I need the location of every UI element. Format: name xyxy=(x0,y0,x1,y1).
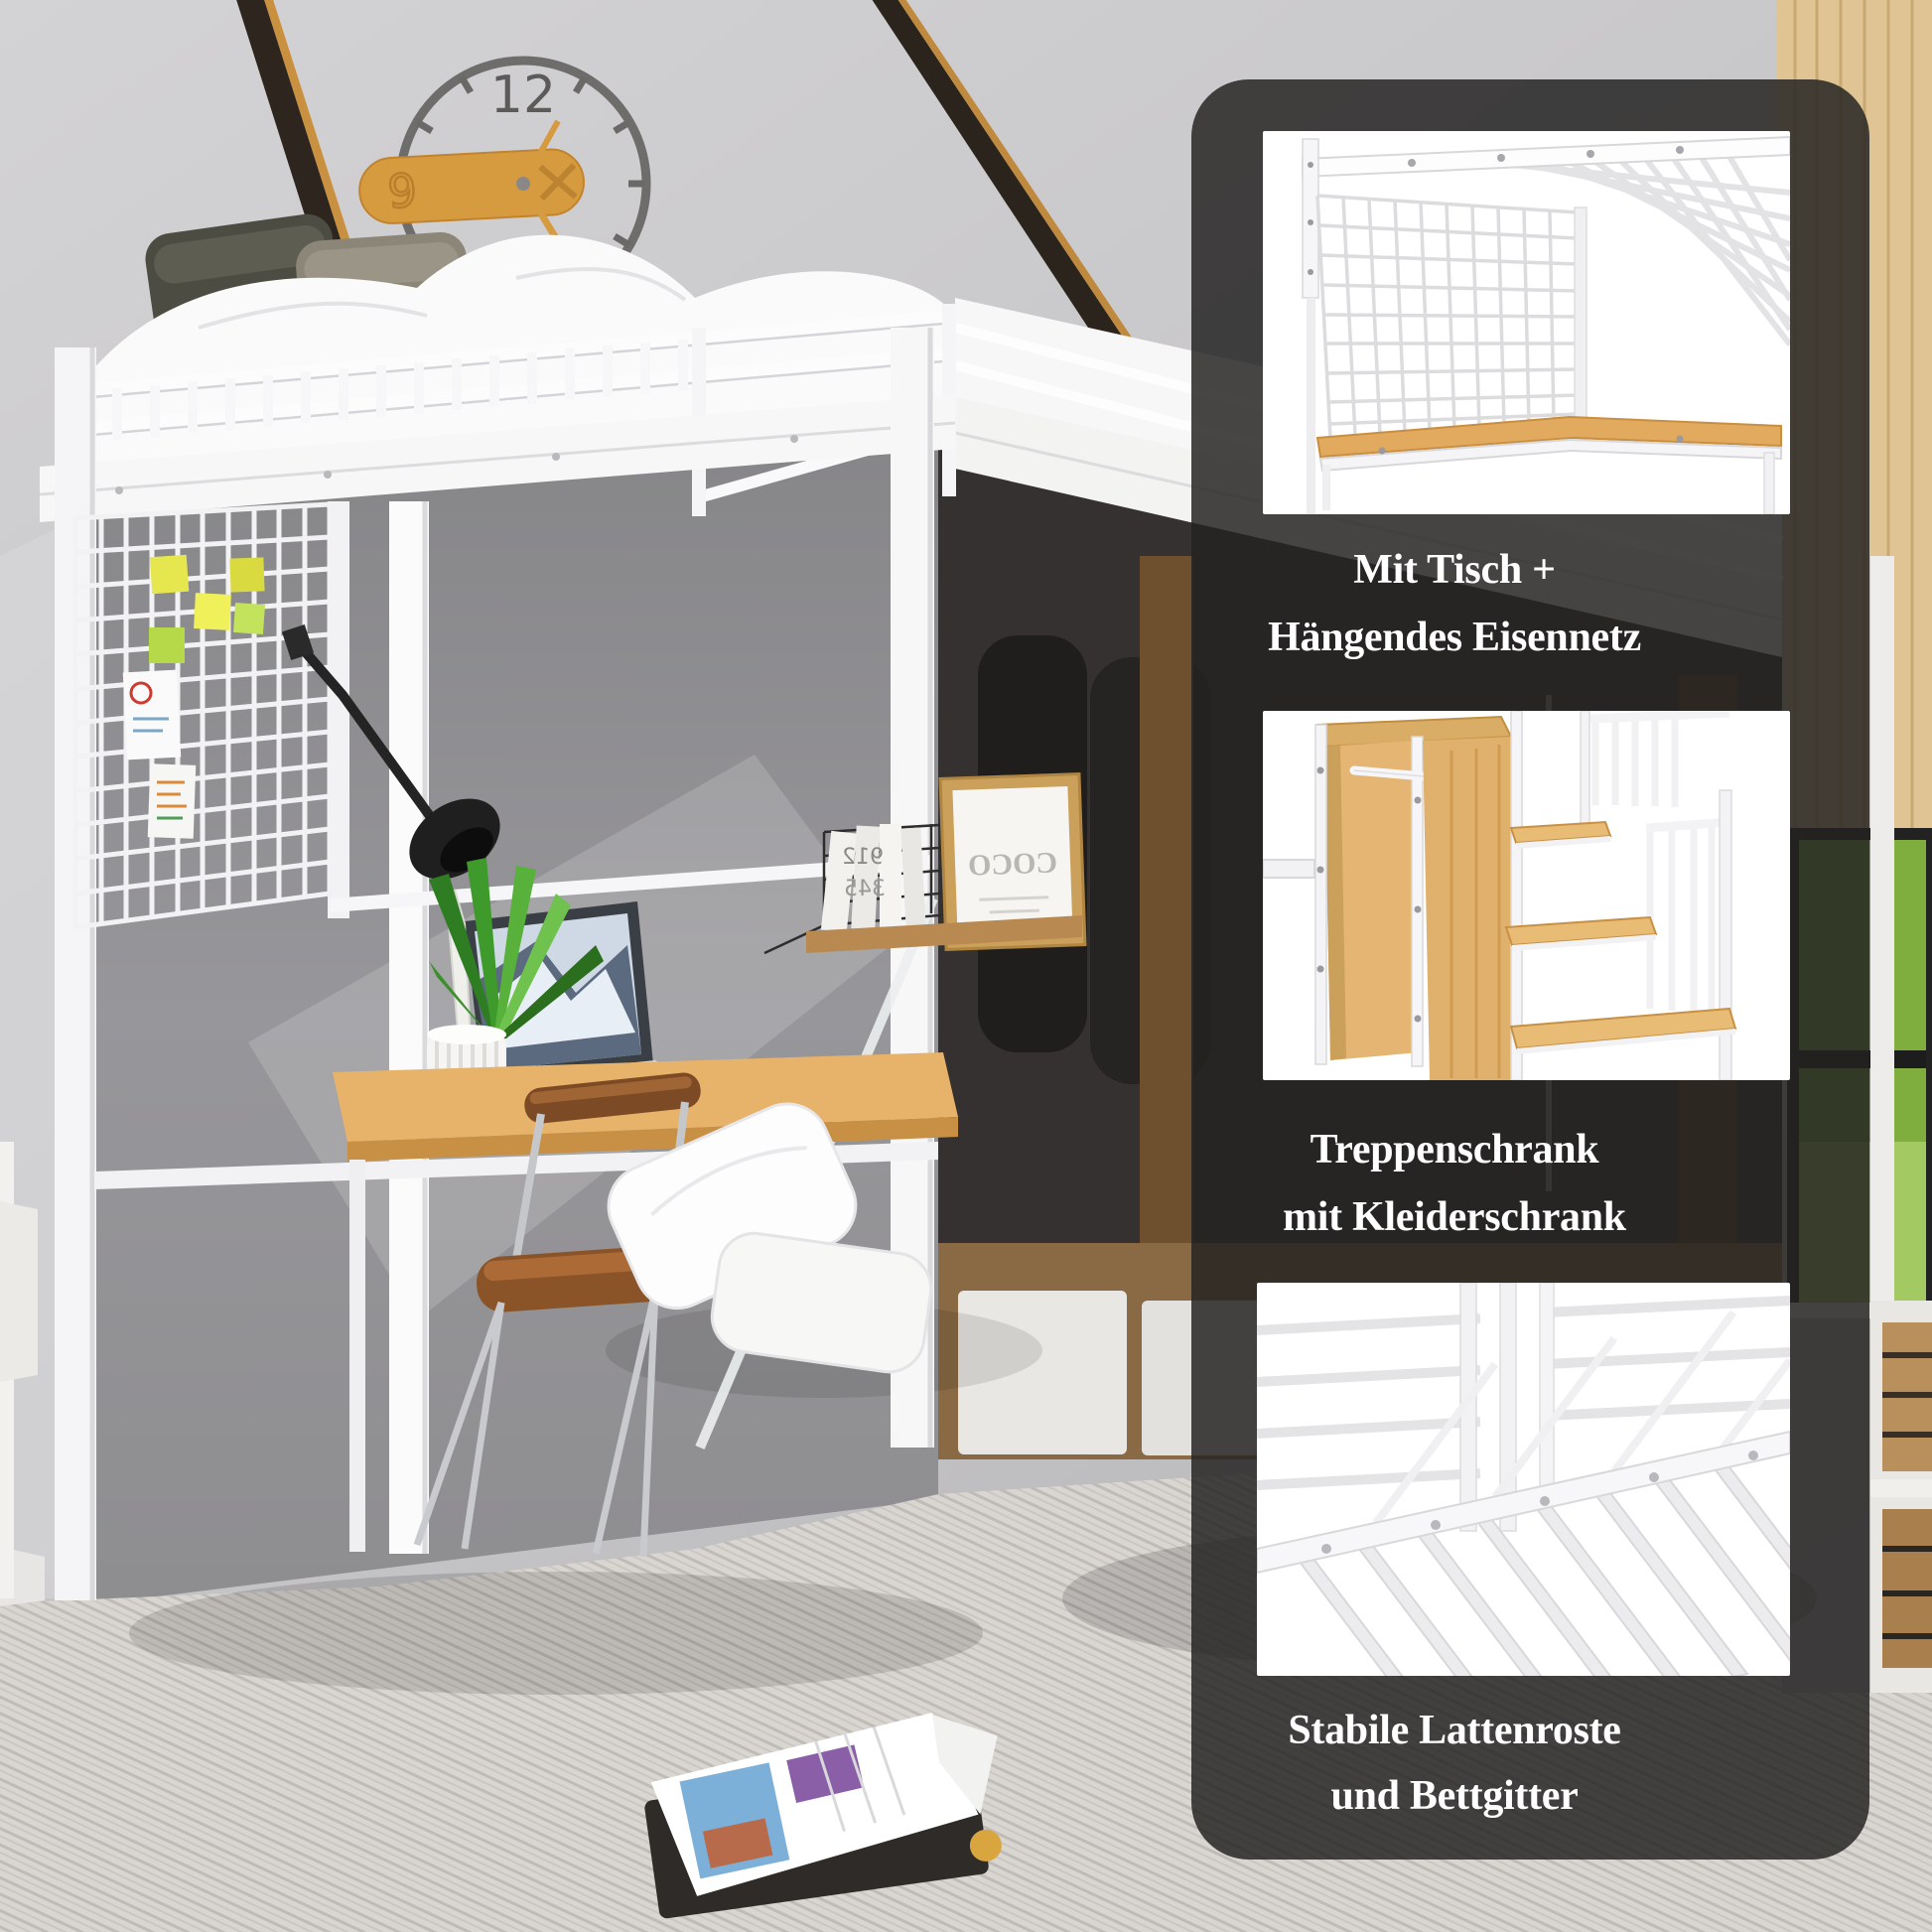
caption-line: Stabile Lattenroste xyxy=(1191,1698,1718,1763)
books: 912 345 xyxy=(821,824,926,932)
caption-line: und Bettgitter xyxy=(1191,1763,1718,1829)
stair-treads xyxy=(1506,822,1735,1051)
feature-image-stair-wardrobe xyxy=(1263,711,1790,1080)
clock-numeral-12: 12 xyxy=(490,66,556,125)
book-digits-1: 912 xyxy=(842,845,884,870)
caption-line: Treppenschrank xyxy=(1191,1116,1718,1183)
bookcase-crates xyxy=(1870,1301,1932,1698)
feature-caption-table-net: Mit Tisch + Hängendes Eisennetz xyxy=(1191,536,1718,671)
hanging-net xyxy=(1317,196,1578,438)
caption-line: Mit Tisch + xyxy=(1191,536,1718,604)
feature-caption-stair-wardrobe: Treppenschrank mit Kleiderschrank xyxy=(1191,1116,1718,1251)
desk-leg xyxy=(349,1160,365,1552)
caption-line: mit Kleiderschrank xyxy=(1191,1183,1718,1251)
product-image: 12 9 xyxy=(0,0,1932,1932)
stair-railings xyxy=(1595,715,1712,1015)
book-digits-2: 345 xyxy=(844,877,886,901)
feature-image-table-and-net xyxy=(1263,131,1790,514)
clock-plate-numeral-9: 9 xyxy=(386,164,418,218)
feature-image-slatted-frame xyxy=(1257,1283,1790,1676)
caption-line: Hängendes Eisennetz xyxy=(1191,604,1718,671)
feature-caption-slats-rails: Stabile Lattenroste und Bettgitter xyxy=(1191,1698,1718,1829)
poster-text: COCO xyxy=(968,846,1058,882)
